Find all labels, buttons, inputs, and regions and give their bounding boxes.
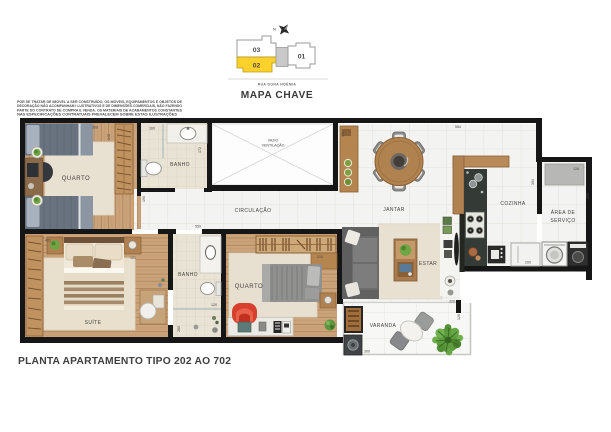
svg-text:554: 554 (455, 125, 461, 129)
svg-text:COZINHA: COZINHA (500, 201, 526, 207)
svg-text:SUÍTE: SUÍTE (85, 319, 102, 326)
svg-text:03: 03 (253, 47, 261, 54)
svg-text:320: 320 (449, 300, 455, 304)
svg-text:200: 200 (525, 261, 531, 265)
svg-text:248: 248 (107, 134, 111, 140)
svg-text:VARANDA: VARANDA (370, 323, 397, 329)
svg-text:SERVIÇO: SERVIÇO (550, 218, 575, 224)
svg-text:BANHO: BANHO (170, 162, 190, 168)
svg-text:172: 172 (198, 147, 202, 153)
svg-text:308: 308 (92, 126, 98, 130)
svg-text:128: 128 (573, 167, 579, 171)
svg-text:PLANTA APARTAMENTO TIPO 202 AO: PLANTA APARTAMENTO TIPO 202 AO 702 (18, 356, 231, 367)
svg-text:101: 101 (130, 256, 136, 260)
svg-text:412: 412 (341, 131, 345, 137)
svg-text:MAPA CHAVE: MAPA CHAVE (241, 90, 314, 101)
svg-text:NAS ESPECIFICAÇÕES CONTRATUAIS: NAS ESPECIFICAÇÕES CONTRATUAIS PREVALECE… (17, 112, 178, 117)
svg-text:160: 160 (149, 127, 155, 131)
svg-text:BANHO: BANHO (178, 272, 198, 278)
svg-text:394: 394 (531, 179, 535, 185)
svg-text:QUARTO: QUARTO (62, 176, 90, 182)
svg-text:02: 02 (253, 63, 261, 70)
svg-text:126: 126 (457, 314, 461, 320)
svg-text:190: 190 (142, 196, 146, 202)
svg-text:ESTAR: ESTAR (419, 261, 437, 267)
svg-text:VAZIO: VAZIO (268, 139, 279, 143)
svg-text:280: 280 (177, 326, 181, 332)
svg-text:401: 401 (45, 239, 51, 243)
svg-text:559: 559 (195, 225, 201, 229)
svg-text:QUARTO: QUARTO (235, 284, 263, 290)
svg-text:310: 310 (317, 255, 323, 259)
svg-text:120: 120 (211, 303, 217, 307)
svg-text:ÁREA DE: ÁREA DE (551, 209, 576, 216)
svg-text:JANTAR: JANTAR (383, 207, 404, 213)
svg-text:CIRCULAÇÃO: CIRCULAÇÃO (235, 207, 272, 214)
svg-text:01: 01 (298, 54, 306, 61)
svg-text:N: N (273, 27, 276, 32)
svg-text:VENTILAÇÃO: VENTILAÇÃO (262, 143, 285, 148)
svg-text:RUA DONA NOÊMIA: RUA DONA NOÊMIA (258, 82, 297, 87)
svg-text:300: 300 (364, 350, 370, 354)
svg-text:265: 265 (586, 193, 590, 199)
